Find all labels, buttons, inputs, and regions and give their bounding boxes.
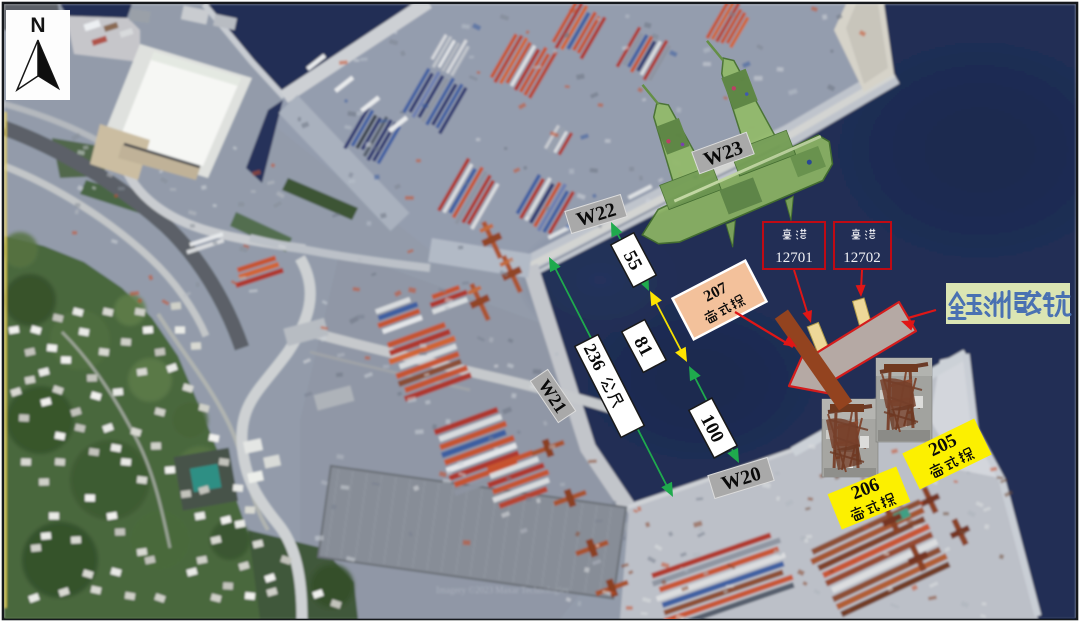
svg-text:12702: 12702 <box>843 250 881 266</box>
svg-text:N: N <box>30 14 45 37</box>
svg-text:12701: 12701 <box>775 250 813 266</box>
svg-text:Imagery ©2023 Maxar Technologi: Imagery ©2023 Maxar Technologies <box>436 585 569 595</box>
